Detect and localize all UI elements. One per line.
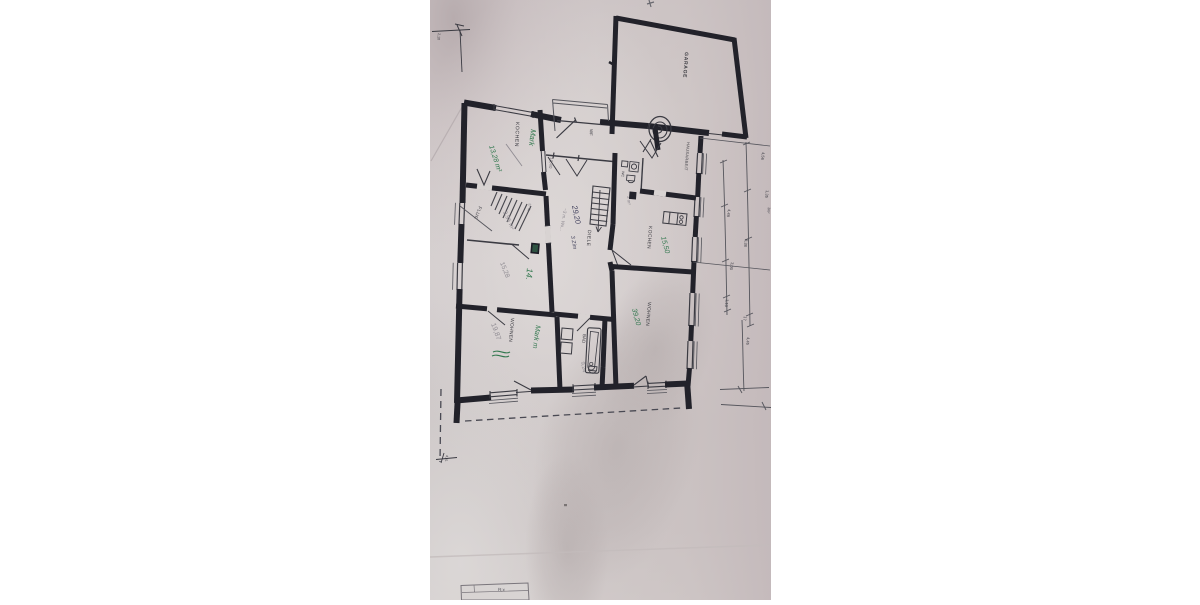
- svg-text:WC: WC: [621, 171, 625, 178]
- svg-text:1,35: 1,35: [764, 190, 770, 199]
- svg-text:4,56: 4,56: [760, 152, 766, 161]
- svg-text:R;x: R;x: [498, 587, 506, 592]
- svg-text:BAD: BAD: [581, 334, 587, 344]
- svg-text:4,45: 4,45: [745, 337, 751, 346]
- svg-text:KOCHEN: KOCHEN: [513, 122, 520, 147]
- svg-text:4,51: 4,51: [444, 455, 449, 462]
- svg-text:DIELE: DIELE: [585, 230, 592, 247]
- svg-text:14.: 14.: [524, 268, 535, 281]
- svg-text:2,10: 2,10: [436, 33, 441, 40]
- svg-text:WF: WF: [589, 129, 594, 136]
